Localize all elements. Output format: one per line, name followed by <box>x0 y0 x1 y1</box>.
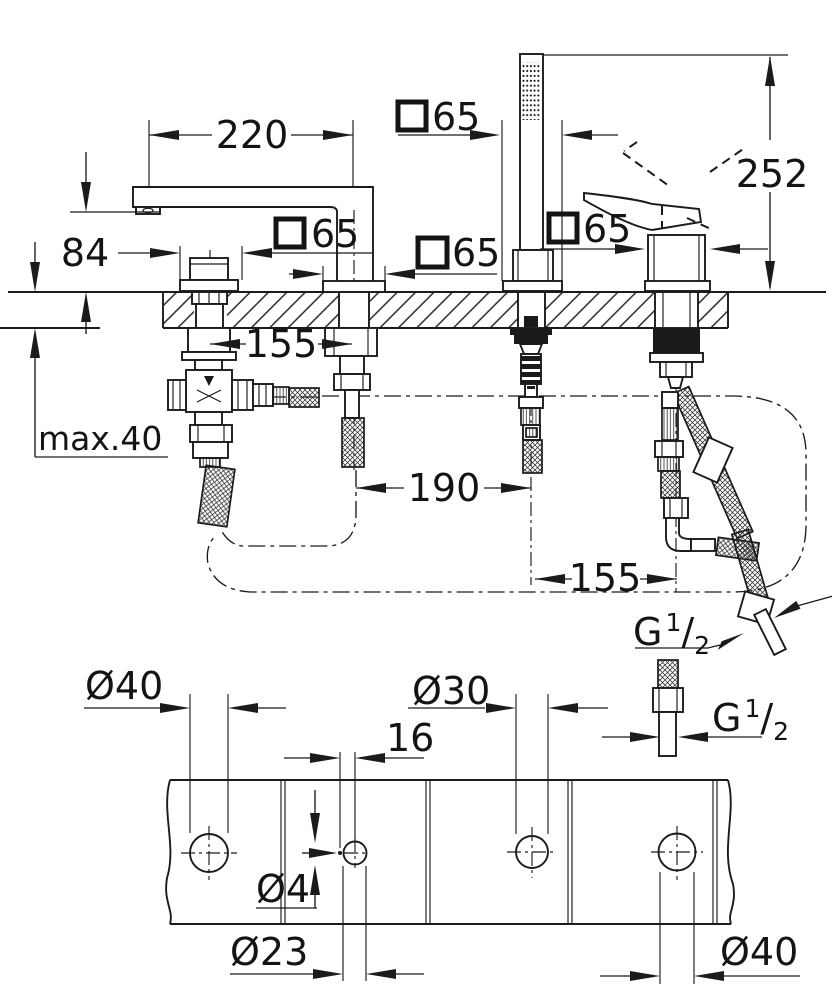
dim-label-dia23: Ø23 <box>230 930 308 974</box>
plan-view-deck <box>166 780 734 924</box>
dim-label-g-half-2: G1/2 <box>712 694 789 746</box>
dim-label-65-valve: 65 <box>311 212 359 256</box>
dimension-220: 220 <box>149 113 353 186</box>
deck-section <box>0 292 826 328</box>
square-symbol <box>418 238 447 267</box>
dim-label-65-lever: 65 <box>583 207 631 251</box>
dim-label-max40: max.40 <box>38 419 162 458</box>
shower-hose-loop <box>207 396 806 592</box>
dim-label-155-left: 155 <box>245 322 318 366</box>
dim-label-155-right: 155 <box>569 556 642 600</box>
dimension-155-right: 155 <box>535 556 677 600</box>
elbow-fitting <box>666 518 691 551</box>
dim-label-252: 252 <box>736 152 809 196</box>
hole-4 <box>338 851 342 855</box>
dim-label-220: 220 <box>216 113 289 157</box>
dimension-hole40-right: Ø40 <box>600 872 800 984</box>
dimension-hole4: Ø4 <box>256 790 337 911</box>
dimension-g-half-diagonal: G1/2 <box>633 596 832 660</box>
dim-label-dia40-right: Ø40 <box>720 930 798 974</box>
technical-drawing-page: 220 84 max.40 65 65 65 65 <box>0 0 832 1000</box>
square-symbol <box>398 102 426 130</box>
square-symbol <box>276 219 304 247</box>
dim-label-190: 190 <box>408 466 481 510</box>
dim-label-84: 84 <box>61 231 109 275</box>
square-symbol <box>549 214 577 242</box>
dim-label-dia4: Ø4 <box>256 867 310 911</box>
faucet-installation-drawing: 220 84 max.40 65 65 65 65 <box>0 0 832 1000</box>
dimension-190: 190 <box>356 466 531 510</box>
dimension-hole30: Ø30 <box>408 669 608 834</box>
hose-end-g-half <box>653 660 683 756</box>
dimension-hole40-left: Ø40 <box>84 664 286 833</box>
dimension-g-half-vertical: G1/2 <box>602 694 789 746</box>
dimension-sq65-valve: 65 <box>118 212 372 280</box>
dimension-84: 84 <box>61 152 160 334</box>
dimension-16: 16 <box>284 716 434 848</box>
dim-label-dia30: Ø30 <box>412 669 490 713</box>
dim-label-65-shower: 65 <box>432 95 480 139</box>
break-line-right <box>728 780 734 924</box>
break-line-left <box>166 780 171 924</box>
dim-label-g-half-1: G1/2 <box>633 608 710 660</box>
dim-label-dia40-left: Ø40 <box>85 664 163 708</box>
dim-label-16: 16 <box>386 716 434 760</box>
dim-label-65-spout: 65 <box>452 231 500 275</box>
